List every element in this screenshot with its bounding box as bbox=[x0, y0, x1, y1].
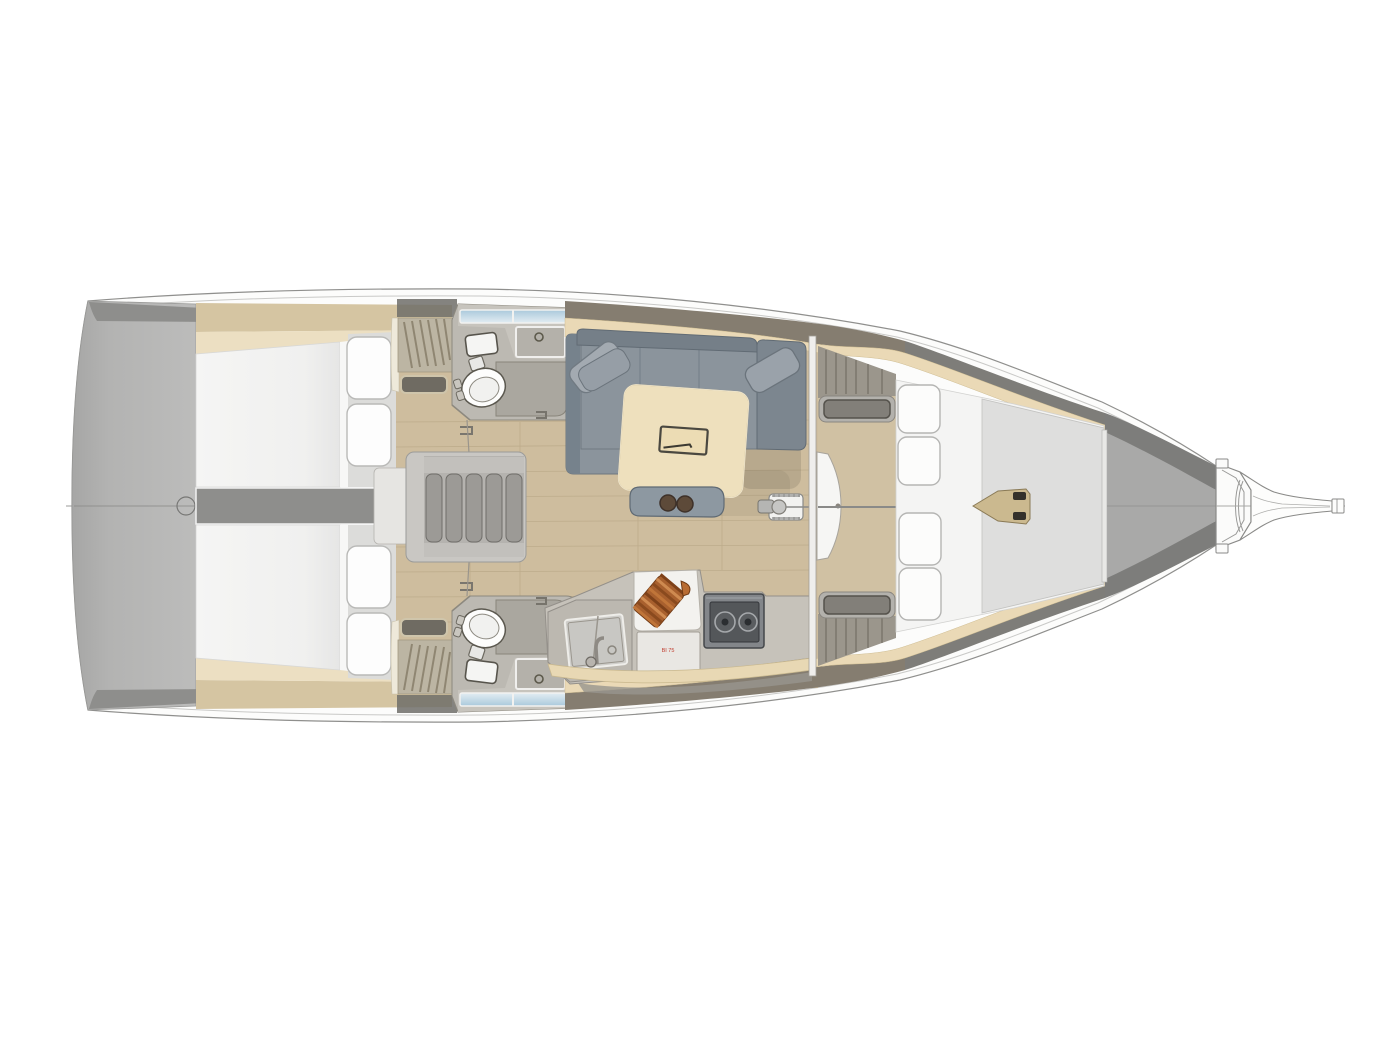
svg-text:BI 75: BI 75 bbox=[662, 648, 675, 654]
